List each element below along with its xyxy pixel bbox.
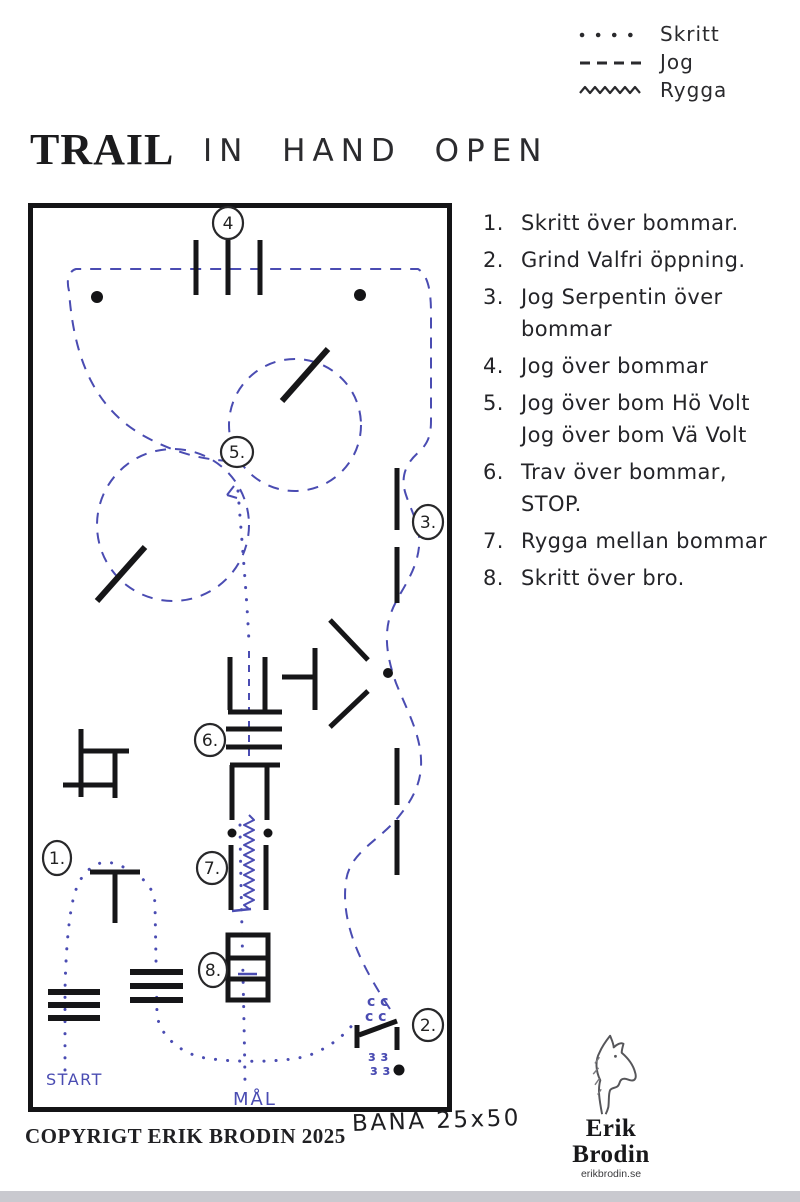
svg-text:5.: 5. [229, 443, 245, 463]
list-item-number: 4. [483, 350, 510, 382]
list-item: 5.Jog över bom Hö Volt Jog över bom Vä V… [483, 387, 799, 451]
list-item-number: 7. [483, 525, 510, 557]
gate-mark-text: ɜ ɜ [370, 1063, 390, 1079]
list-item-number: 3. [483, 281, 510, 345]
marker-8: 8. [199, 953, 227, 987]
obstacle-5-bom-right [282, 349, 328, 401]
list-item: 7.Rygga mellan bommar [483, 525, 799, 557]
list-item-text: Jog Serpentin över bommar [521, 281, 723, 345]
svg-text:8.: 8. [205, 961, 221, 981]
obstacle-markers: 4 5. 3. 6. 1. 7. 8. 2. [43, 207, 443, 1041]
list-item: 1.Skritt över bommar. [483, 207, 799, 239]
svg-text:3.: 3. [420, 513, 436, 533]
marker-4: 4 [213, 207, 243, 239]
pinwheel-obstacle [63, 729, 129, 798]
legend-label-skritt: Skritt [660, 22, 720, 46]
horse-head-icon [575, 1034, 647, 1116]
t-obstacle [90, 872, 140, 923]
brand-logo: Erik Brodin erikbrodin.se [548, 1034, 674, 1181]
list-item-number: 1. [483, 207, 510, 239]
svg-text:6.: 6. [202, 731, 218, 751]
list-item-text: Jog över bom Hö Volt Jog över bom Vä Vol… [521, 387, 750, 451]
funnel-obstacle [282, 620, 368, 727]
list-item: 3.Jog Serpentin över bommar [483, 281, 799, 345]
copyright-text: COPYRIGT ERIK BRODIN 2025 [25, 1124, 346, 1149]
legend-row-rygga: Rygga [578, 76, 727, 104]
cone-dot [228, 829, 237, 838]
list-item: 2.Grind Valfri öppning. [483, 244, 799, 276]
list-item-text: Grind Valfri öppning. [521, 244, 745, 276]
list-item-text: Jog över bommar [521, 350, 708, 382]
cone-dot [264, 829, 273, 838]
marker-7: 7. [197, 852, 227, 884]
cone-dot [394, 1065, 405, 1076]
skritt-path-goal [240, 825, 245, 1083]
list-item: 8.Skritt över bro. [483, 562, 799, 594]
svg-text:1.: 1. [49, 849, 65, 869]
start-label: START [46, 1070, 103, 1089]
list-item-number: 5. [483, 387, 510, 451]
logo-name: Erik Brodin [548, 1116, 674, 1168]
logo-site: erikbrodin.se [548, 1168, 674, 1181]
marker-2: 2. [413, 1009, 443, 1041]
marker-1: 1. [43, 841, 71, 875]
legend-row-skritt: Skritt [578, 20, 727, 48]
volt-circle-right [229, 359, 361, 491]
legend-label-jog: Jog [660, 50, 694, 74]
arena-size-note: BANA 25x50 [352, 1105, 522, 1137]
gate-mark-text: c c [365, 1009, 386, 1025]
svg-text:4: 4 [223, 214, 234, 234]
cone-dot [354, 289, 366, 301]
gate-marks: c c c c ɜ ɜ ɜ ɜ [365, 994, 390, 1079]
path-arrow [227, 486, 237, 498]
legend: Skritt Jog Rygga [578, 20, 727, 104]
goal-label: MÅL [233, 1088, 277, 1110]
zigzag-line-icon [578, 83, 644, 97]
dashed-line-icon [578, 55, 644, 69]
list-item: 4.Jog över bommar [483, 350, 799, 382]
list-item-number: 2. [483, 244, 510, 276]
obstacle-2-gate [357, 1021, 397, 1050]
course-paths [65, 269, 431, 1083]
rygga-zigzag [244, 815, 254, 909]
svg-text:7.: 7. [204, 859, 220, 879]
legend-label-rygga: Rygga [660, 78, 727, 102]
page-subtitle: IN HAND OPEN [203, 133, 549, 169]
obstacle-bars [48, 240, 397, 1050]
list-item-number: 6. [483, 456, 510, 520]
cone-dot [91, 291, 103, 303]
obstacle-4-poles [196, 240, 260, 295]
list-item-text: Rygga mellan bommar [521, 525, 767, 557]
svg-text:2.: 2. [420, 1016, 436, 1036]
arena-diagram: c c c c ɜ ɜ ɜ ɜ 4 5. 3. 6. 1. 7. [28, 203, 452, 1112]
obstacle-1-poles [48, 972, 183, 1018]
gate-mark-text: c c [367, 994, 388, 1010]
marker-5: 5. [221, 437, 253, 467]
marker-6: 6. [195, 724, 225, 756]
obstacle-list: 1.Skritt över bommar. 2.Grind Valfri öpp… [483, 207, 799, 599]
marker-3: 3. [413, 505, 443, 539]
list-item-text: Skritt över bommar. [521, 207, 739, 239]
list-item-text: Skritt över bro. [521, 562, 685, 594]
list-item: 6.Trav över bommar, STOP. [483, 456, 799, 520]
page-title: TRAIL [30, 124, 174, 175]
list-item-number: 8. [483, 562, 510, 594]
legend-row-jog: Jog [578, 48, 727, 76]
obstacle-6-channel [226, 657, 282, 820]
cone-dot [383, 668, 393, 678]
obstacle-8-bridge [228, 935, 268, 1000]
dotted-line-icon [578, 27, 644, 41]
scan-edge-strip [0, 1191, 800, 1202]
list-item-text: Trav över bommar, STOP. [521, 456, 727, 520]
